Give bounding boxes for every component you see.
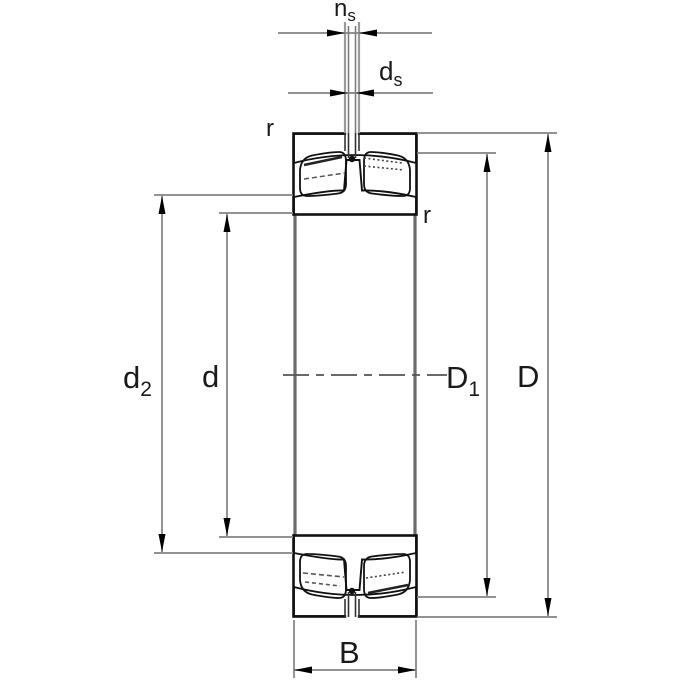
label-B: B (339, 635, 360, 670)
hole-exit-top (349, 156, 355, 162)
B-arrow-right (398, 667, 416, 674)
d2-arrow-top (159, 196, 166, 214)
hole-exit-bottom (349, 588, 355, 594)
label-r-outer: r (266, 115, 274, 142)
bearing-drawing: ns ds r r d2 d D1 (0, 0, 680, 680)
d-arrow-top (224, 214, 231, 232)
label-D: D (517, 359, 539, 394)
cage-line-top-left (304, 157, 342, 165)
cage-dash-top-left (304, 173, 345, 179)
bearing-top-section (294, 132, 417, 215)
label-d: d (202, 359, 219, 394)
D-arrow-top (545, 134, 552, 152)
label-ds: ds (379, 56, 402, 90)
dimension-B: B (294, 620, 416, 678)
ns-arrow-left (327, 30, 345, 37)
drawing-canvas: ns ds r r d2 d D1 (0, 0, 680, 680)
ns-arrow-right (359, 30, 377, 37)
bearing-bottom-section (294, 536, 417, 619)
label-ns: ns (334, 0, 356, 25)
B-arrow-left (294, 667, 312, 674)
cage-dots2-top-right (364, 166, 404, 170)
dimension-ns: ns (278, 0, 432, 133)
cage-dash-bottom-left (303, 573, 344, 577)
inner-ring-top (294, 160, 416, 215)
d-arrow-bottom (224, 518, 231, 536)
dimension-d: d (202, 213, 293, 537)
D1-arrow-bottom (484, 578, 491, 596)
D1-arrow-top (484, 154, 491, 172)
dimension-ds: ds (288, 56, 433, 97)
D-arrow-bottom (545, 598, 552, 616)
label-r-inner: r (423, 202, 431, 229)
label-d2: d2 (123, 360, 152, 401)
cage-dots-bottom-right (366, 572, 406, 578)
d2-arrow-bottom (159, 534, 166, 552)
roller-top-right (364, 152, 410, 196)
inner-ring-bottom (294, 536, 416, 591)
cage-dash2-bottom-left (305, 582, 340, 586)
label-D1: D1 (446, 360, 480, 401)
